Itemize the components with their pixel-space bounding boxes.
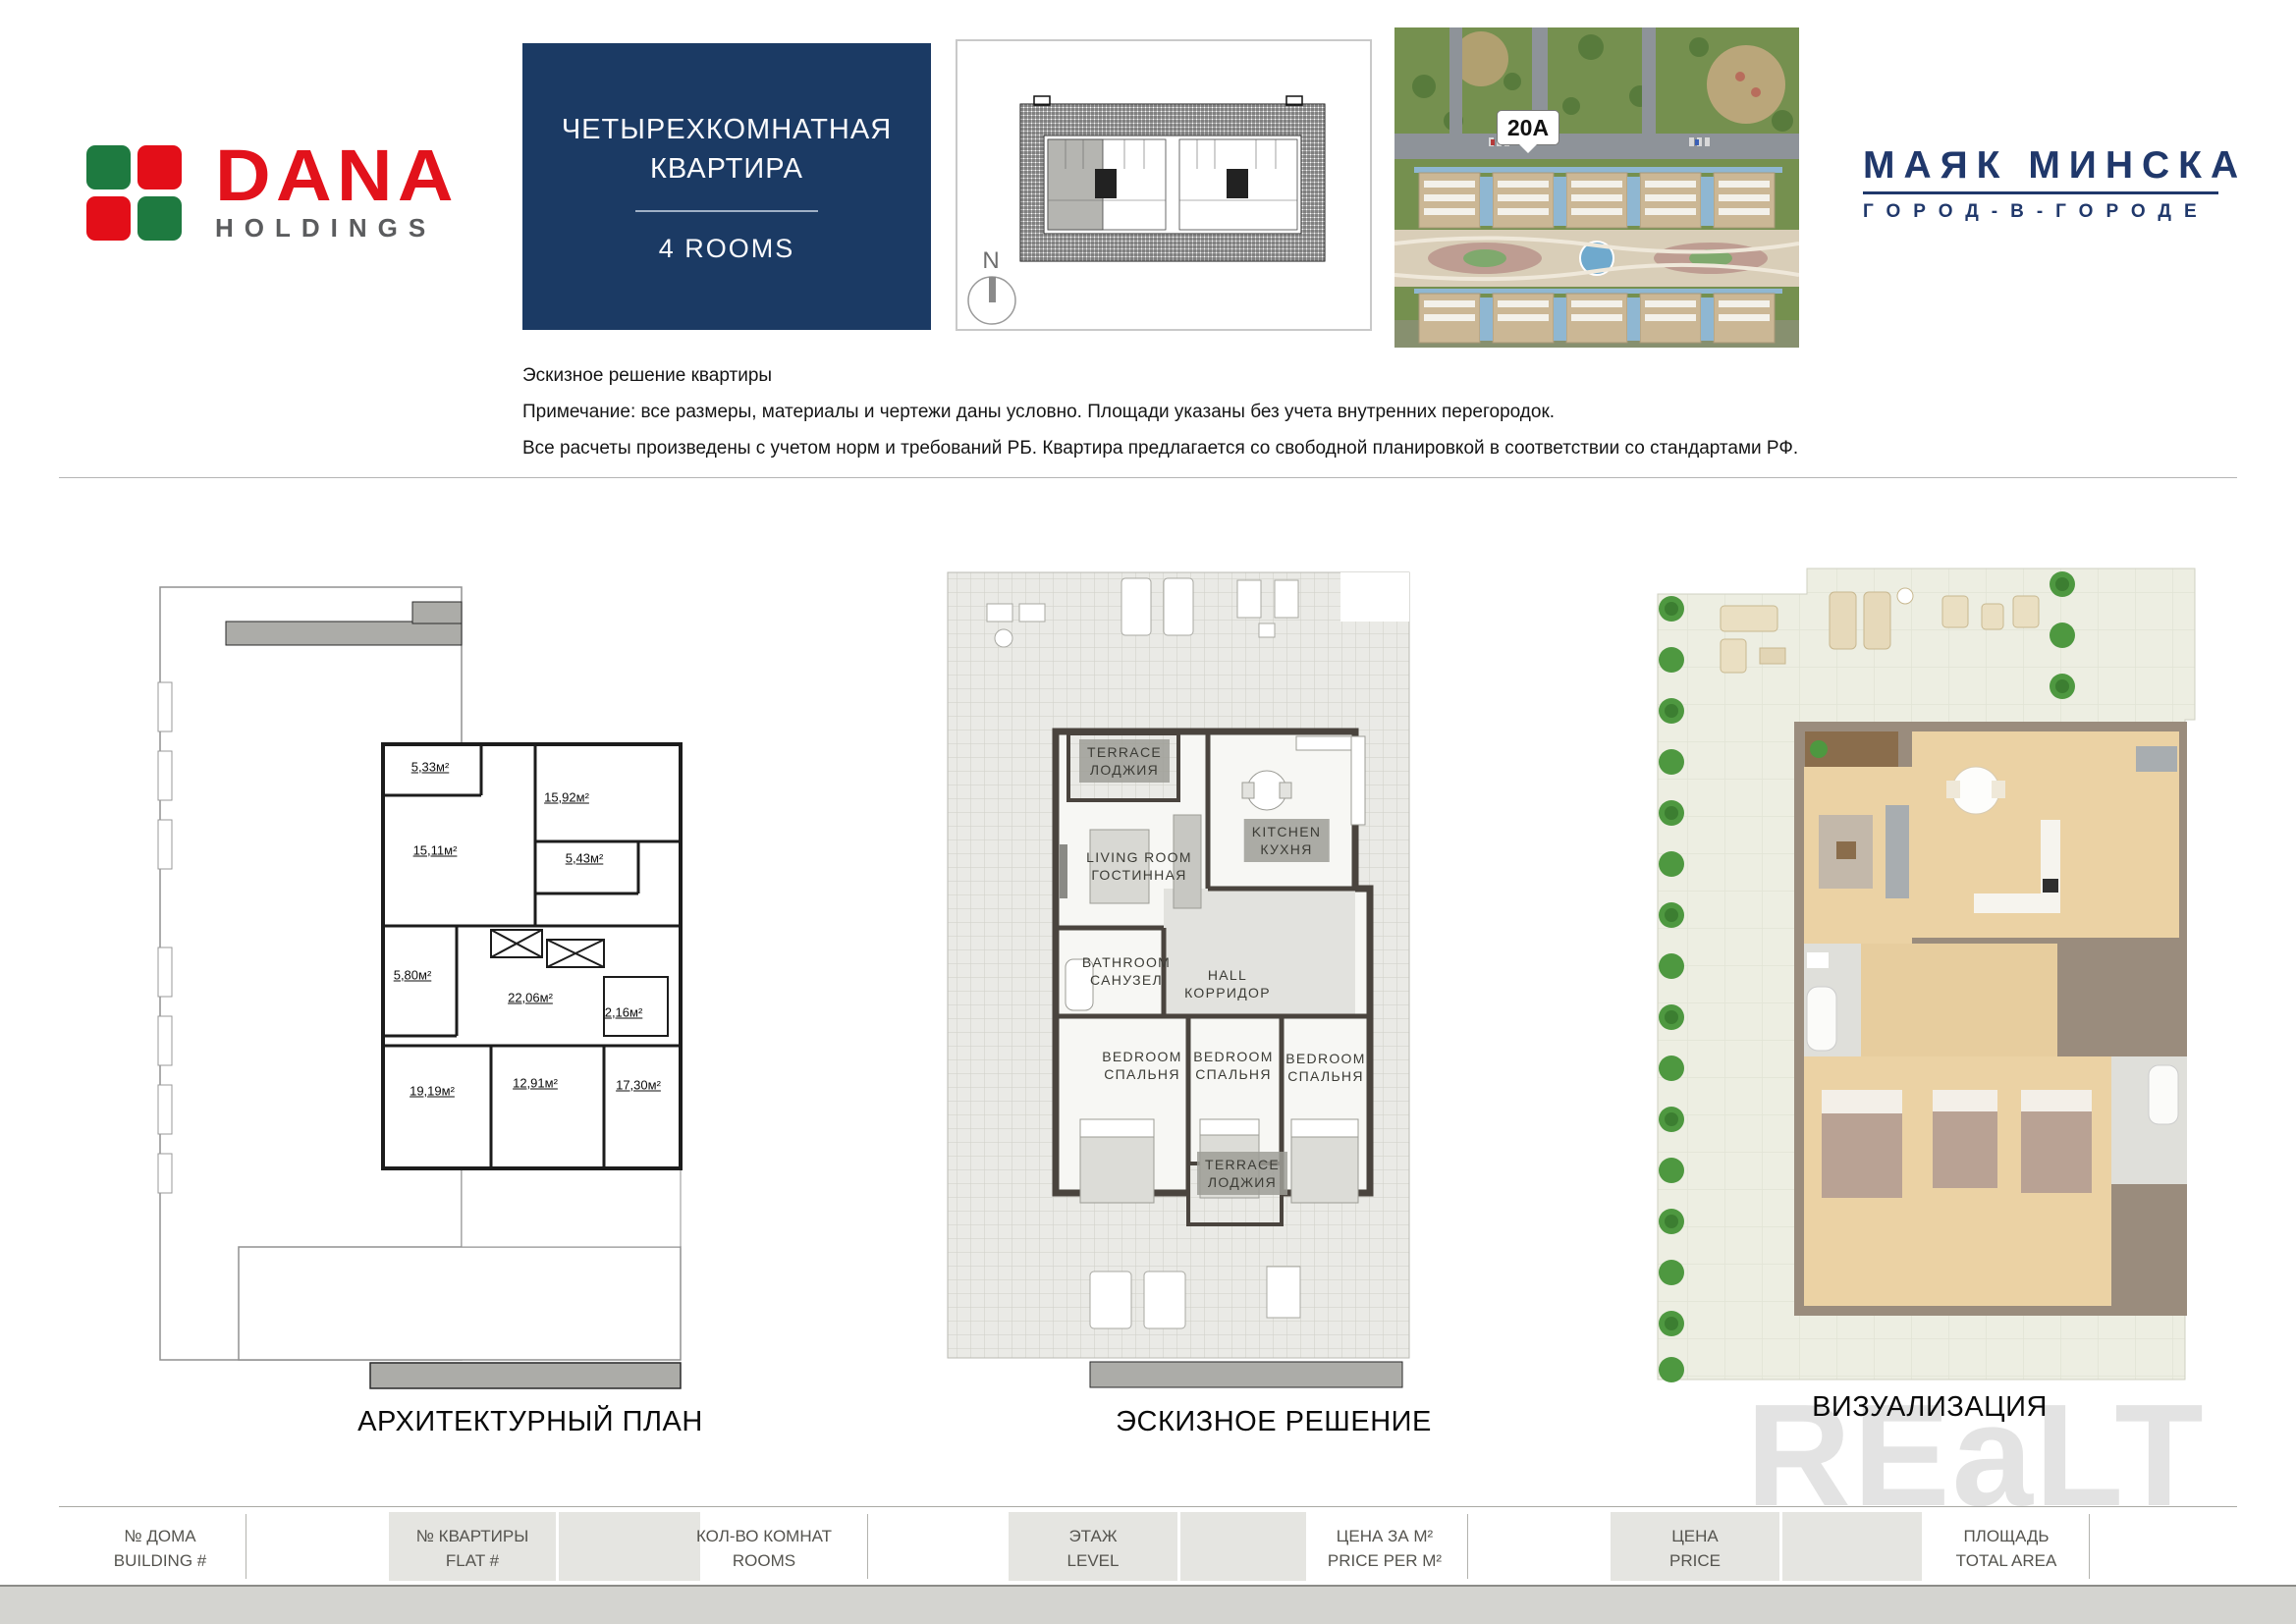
room-label-terrace-top: TERRACE ЛОДЖИЯ [1079, 739, 1170, 783]
footer-cell-ru: № ДОМА [114, 1524, 206, 1548]
room-area-label: 5,80м² [394, 968, 432, 983]
header-divider-line [59, 477, 2237, 478]
sketch-plan-drawing [943, 565, 1414, 1399]
room-area-label: 15,11м² [413, 843, 458, 858]
room-label-ru: САНУЗЕЛ [1082, 971, 1171, 989]
room-label-en: LIVING ROOM [1086, 848, 1192, 866]
room-label-bedroom-3: BEDROOM СПАЛЬНЯ [1285, 1050, 1365, 1085]
room-label-hall: HALL КОРРИДОР [1184, 966, 1271, 1001]
footer-cell-ru: ПЛОЩАДЬ [1956, 1524, 2057, 1548]
footer-cell-total-area: ПЛОЩАДЬ TOTAL AREA [1956, 1524, 2057, 1573]
aerial-drawing [1394, 27, 1799, 348]
compass-icon [968, 277, 1015, 324]
footer-gray-box [1782, 1512, 1922, 1581]
room-label-en: BEDROOM [1193, 1048, 1273, 1065]
title-line-ru-2: КВАРТИРА [650, 149, 803, 189]
footer-cell-price-per-m2: ЦЕНА ЗА М² PRICE PER M² [1328, 1524, 1442, 1573]
aerial-site-view [1394, 27, 1799, 348]
dana-logo-icon [86, 145, 182, 241]
aerial-plaza [1394, 230, 1799, 287]
room-area-label: 5,33м² [411, 760, 450, 775]
title-divider [635, 210, 818, 212]
room-area-label: 2,16м² [605, 1005, 643, 1020]
room-label-ru: ЛОДЖИЯ [1205, 1173, 1280, 1191]
terrace-notch [1340, 572, 1409, 622]
highlighted-apartment [1048, 139, 1103, 230]
footer-cell-ru: КОЛ-ВО КОМНАТ [696, 1524, 832, 1548]
visualization-plan [1650, 555, 2259, 1399]
footer-cell-en: ROOMS [696, 1548, 832, 1573]
room-label-en: BEDROOM [1102, 1048, 1181, 1065]
footer-cell-level: ЭТАЖ LEVEL [1067, 1524, 1120, 1573]
room-label-bedroom-2: BEDROOM СПАЛЬНЯ [1193, 1048, 1273, 1083]
flyer-page: DANA HOLDINGS ЧЕТЫРЕХКОМНАТНАЯ КВАРТИРА … [0, 0, 2296, 1624]
bottom-wall-band [1090, 1362, 1402, 1387]
mayak-minska-logo: МАЯК МИНСКА ГОРОД-В-ГОРОДЕ [1863, 144, 2218, 223]
room-label-terrace-bottom: TERRACE ЛОДЖИЯ [1197, 1152, 1287, 1195]
building-footprint [1020, 96, 1325, 261]
apartment-walls [383, 744, 681, 1168]
aerial-buildings [1394, 167, 1799, 343]
caption-visualization: ВИЗУАЛИЗАЦИЯ [1812, 1391, 2048, 1424]
room-label-en: TERRACE [1205, 1156, 1280, 1173]
footer-cell-en: FLAT # [416, 1548, 529, 1573]
room-label-bedroom-1: BEDROOM СПАЛЬНЯ [1102, 1048, 1181, 1083]
footer-cell-en: TOTAL AREA [1956, 1548, 2057, 1573]
logo-square-red [86, 196, 131, 241]
note-line-3: Все расчеты произведены с учетом норм и … [522, 438, 1798, 460]
key-plan-drawing [957, 41, 1370, 329]
room-label-ru: СПАЛЬНЯ [1193, 1065, 1273, 1083]
sketch-plan [943, 565, 1414, 1399]
logo-square-red [137, 145, 182, 189]
footer-bottom-strip [0, 1585, 2296, 1624]
room-label-en: TERRACE [1087, 743, 1162, 761]
room-area-label: 19,19м² [410, 1084, 455, 1099]
room-label-living: LIVING ROOM ГОСТИННАЯ [1086, 848, 1192, 884]
footer-cell-ru: ЦЕНА [1669, 1524, 1721, 1548]
room-label-ru: СПАЛЬНЯ [1102, 1065, 1181, 1083]
room-label-ru: КОРРИДОР [1184, 984, 1271, 1001]
footer-cell-en: PRICE PER M² [1328, 1548, 1442, 1573]
compass-north-label: N [976, 247, 1006, 275]
dana-holdings-label: HOLDINGS [215, 213, 445, 244]
room-label-ru: КУХНЯ [1252, 840, 1322, 858]
logo-square-green [137, 196, 182, 241]
dana-logo-text: DANA HOLDINGS [215, 145, 445, 244]
room-area-label: 22,06м² [508, 991, 553, 1005]
room-label-en: BEDROOM [1285, 1050, 1365, 1067]
footer-divider [246, 1514, 246, 1579]
caption-sketch: ЭСКИЗНОЕ РЕШЕНИЕ [1116, 1406, 1432, 1438]
footer-cell-price: ЦЕНА PRICE [1669, 1524, 1721, 1573]
note-line-2: Примечание: все размеры, материалы и чер… [522, 402, 1555, 423]
building-20a-callout: 20A [1497, 110, 1559, 145]
room-area-label: 12,91м² [513, 1076, 558, 1091]
mayak-underline [1863, 191, 2218, 194]
viz-apartment [1794, 722, 2187, 1316]
footer-cell-en: PRICE [1669, 1548, 1721, 1573]
footer-cell-en: BUILDING # [114, 1548, 206, 1573]
room-label-en: KITCHEN [1252, 823, 1322, 840]
room-label-en: HALL [1184, 966, 1271, 984]
room-area-label: 15,92м² [544, 790, 589, 805]
footer-divider [2089, 1514, 2090, 1579]
building-key-plan [956, 39, 1372, 331]
footer-divider [867, 1514, 868, 1579]
mayak-tagline: ГОРОД-В-ГОРОДЕ [1863, 201, 2218, 223]
building-20a-label: 20A [1507, 115, 1549, 141]
dana-holdings-logo: DANA HOLDINGS [86, 145, 445, 244]
room-label-en: BATHROOM [1082, 953, 1171, 971]
footer-cell-ru: № КВАРТИРЫ [416, 1524, 529, 1548]
room-label-ru: ГОСТИННАЯ [1086, 866, 1192, 884]
footer-cell-rooms: КОЛ-ВО КОМНАТ ROOMS [696, 1524, 832, 1573]
visualization-drawing [1650, 555, 2259, 1399]
logo-square-green [86, 145, 131, 189]
mayak-name: МАЯК МИНСКА [1863, 144, 2218, 188]
footer-cell-building: № ДОМА BUILDING # [114, 1524, 206, 1573]
room-label-ru: ЛОДЖИЯ [1087, 761, 1162, 779]
footer-cell-flat: № КВАРТИРЫ FLAT # [416, 1524, 529, 1573]
room-label-bathroom: BATHROOM САНУЗЕЛ [1082, 953, 1171, 989]
footer-cell-ru: ЭТАЖ [1067, 1524, 1120, 1548]
footer-gray-box [559, 1512, 700, 1581]
room-area-label: 5,43м² [566, 851, 604, 866]
apartment-title-box: ЧЕТЫРЕХКОМНАТНАЯ КВАРТИРА 4 ROOMS [522, 43, 931, 330]
dana-wordmark: DANA [215, 145, 459, 206]
title-rooms-en: 4 ROOMS [659, 234, 795, 264]
title-line-ru-1: ЧЕТЫРЕХКОМНАТНАЯ [562, 110, 892, 149]
footer-gray-box [1180, 1512, 1306, 1581]
footer-cell-en: LEVEL [1067, 1548, 1120, 1573]
room-label-kitchen: KITCHEN КУХНЯ [1244, 819, 1330, 862]
room-area-label: 17,30м² [616, 1078, 661, 1093]
room-label-ru: СПАЛЬНЯ [1285, 1067, 1365, 1085]
caption-architectural: АРХИТЕКТУРНЫЙ ПЛАН [357, 1406, 703, 1438]
footer-top-line [59, 1506, 2237, 1507]
footer-divider [1467, 1514, 1468, 1579]
note-line-1: Эскизное решение квартиры [522, 365, 772, 387]
footer-cell-ru: ЦЕНА ЗА М² [1328, 1524, 1442, 1548]
